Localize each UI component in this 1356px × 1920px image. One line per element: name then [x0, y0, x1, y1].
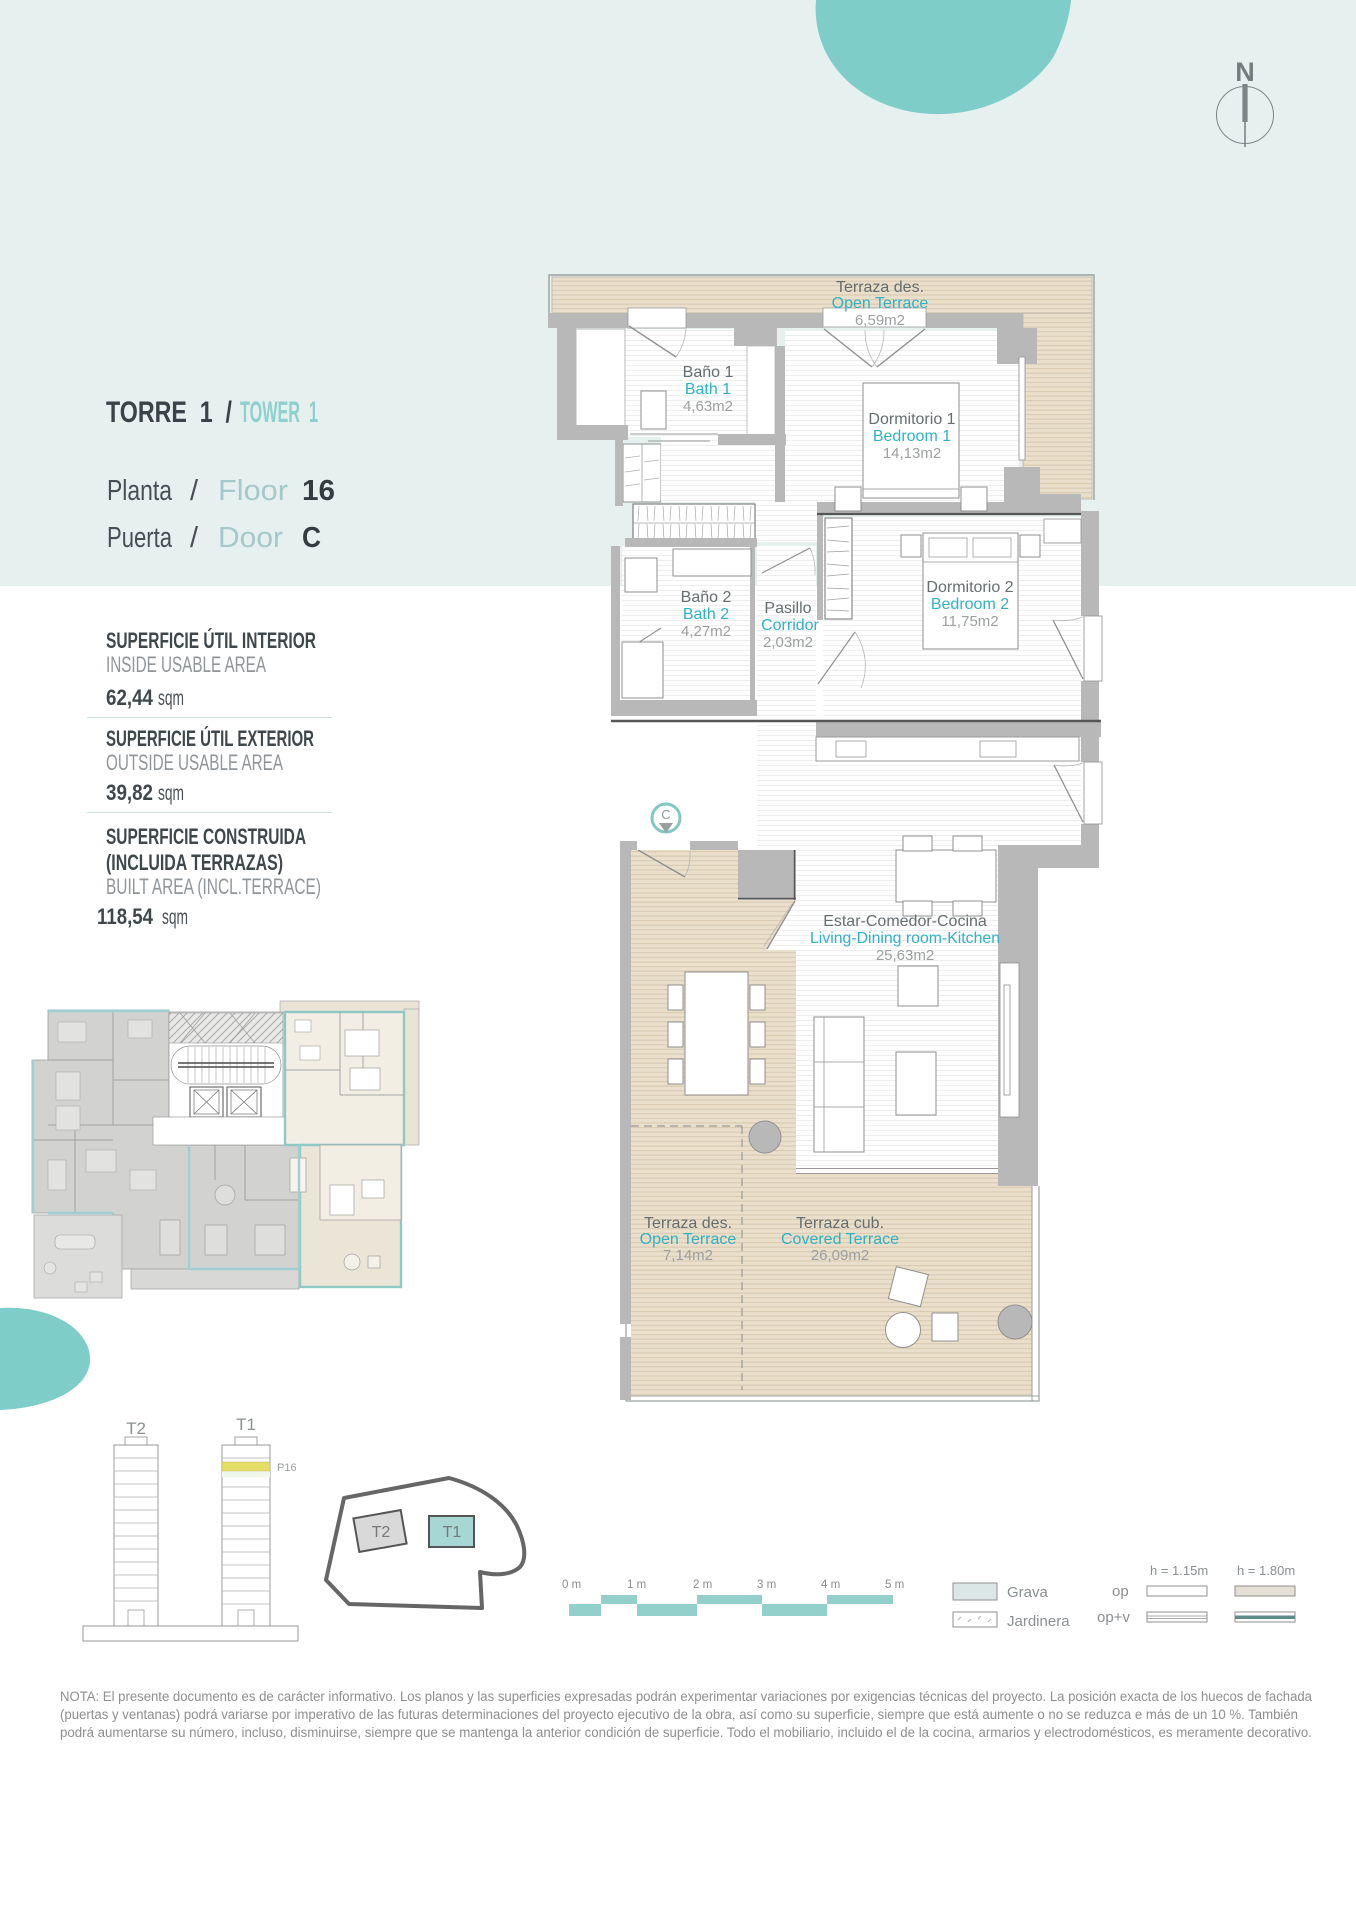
svg-text:P16: P16: [277, 1462, 297, 1474]
svg-text:C: C: [302, 522, 321, 554]
svg-text:4,63m2: 4,63m2: [683, 398, 733, 415]
svg-text:N: N: [1235, 57, 1255, 87]
svg-text:Grava: Grava: [1007, 1584, 1049, 1601]
svg-text:(puertas y ventanas) podrá var: (puertas y ventanas) podrá variarse por …: [60, 1707, 1298, 1722]
svg-text:TOWER 1: TOWER 1: [240, 396, 318, 429]
svg-text:OUTSIDE USABLE AREA: OUTSIDE USABLE AREA: [106, 750, 283, 775]
svg-text:INSIDE USABLE AREA: INSIDE USABLE AREA: [106, 652, 266, 677]
svg-text:Dormitorio 1: Dormitorio 1: [868, 411, 955, 428]
svg-text:T2: T2: [372, 1524, 391, 1541]
svg-text:C: C: [661, 807, 670, 822]
svg-text:25,63m2: 25,63m2: [876, 947, 934, 964]
svg-text:NOTA: El presente documento es: NOTA: El presente documento es de caráct…: [60, 1689, 1313, 1704]
svg-text:podrá aumentarse su número, in: podrá aumentarse su número, incluso, dis…: [60, 1725, 1312, 1740]
svg-text:11,75m2: 11,75m2: [941, 613, 998, 630]
svg-text:h = 1.80m: h = 1.80m: [1237, 1563, 1295, 1578]
svg-text:3 m: 3 m: [757, 1579, 776, 1591]
svg-text:Corridor: Corridor: [761, 617, 819, 634]
svg-text:16: 16: [302, 475, 335, 507]
svg-text:Planta: Planta: [107, 475, 173, 507]
svg-text:/: /: [190, 522, 199, 554]
svg-text:Dormitorio 2: Dormitorio 2: [926, 579, 1013, 596]
svg-text:SUPERFICIE CONSTRUIDA: SUPERFICIE CONSTRUIDA: [106, 824, 306, 849]
svg-text:Terraza cub.: Terraza cub.: [796, 1215, 884, 1232]
svg-text:SUPERFICIE ÚTIL INTERIOR: SUPERFICIE ÚTIL INTERIOR: [106, 628, 316, 653]
svg-text:/: /: [190, 475, 199, 507]
svg-text:Bedroom 2: Bedroom 2: [931, 596, 1009, 613]
svg-text:op+v: op+v: [1097, 1609, 1130, 1626]
svg-text:Terraza des.: Terraza des.: [644, 1215, 732, 1232]
svg-text:26,09m2: 26,09m2: [811, 1247, 869, 1264]
svg-text:7,14m2: 7,14m2: [663, 1247, 713, 1264]
svg-text:Pasillo: Pasillo: [764, 600, 811, 617]
svg-text:0 m: 0 m: [562, 1579, 581, 1591]
svg-text:Bath 1: Bath 1: [685, 381, 731, 398]
svg-text:118,54: 118,54: [97, 904, 154, 929]
svg-text:BUILT AREA (INCL.TERRACE): BUILT AREA (INCL.TERRACE): [106, 874, 321, 899]
svg-text:Terraza des.: Terraza des.: [836, 279, 924, 296]
svg-text:T1: T1: [443, 1524, 462, 1541]
svg-text:4,27m2: 4,27m2: [681, 623, 731, 640]
svg-text:Open Terrace: Open Terrace: [832, 295, 929, 312]
svg-text:14,13m2: 14,13m2: [883, 445, 941, 462]
svg-text:Jardinera: Jardinera: [1007, 1613, 1070, 1630]
svg-text:5 m: 5 m: [885, 1579, 904, 1591]
svg-text:Bath 2: Bath 2: [683, 606, 729, 623]
svg-text:Puerta: Puerta: [107, 522, 173, 554]
svg-text:62,44: 62,44: [106, 685, 154, 710]
svg-text:TORRE 1 /: TORRE 1 /: [106, 396, 233, 429]
svg-text:SUPERFICIE ÚTIL EXTERIOR: SUPERFICIE ÚTIL EXTERIOR: [106, 726, 314, 751]
svg-text:h = 1.15m: h = 1.15m: [1150, 1563, 1208, 1578]
svg-text:T1: T1: [236, 1415, 256, 1434]
svg-text:T2: T2: [126, 1419, 146, 1438]
svg-text:Baño 1: Baño 1: [683, 364, 734, 381]
svg-text:sqm: sqm: [158, 687, 184, 710]
svg-text:39,82: 39,82: [106, 780, 153, 805]
svg-text:6,59m2: 6,59m2: [855, 312, 905, 329]
svg-text:sqm: sqm: [158, 782, 184, 805]
svg-text:1 m: 1 m: [627, 1579, 646, 1591]
svg-text:op: op: [1112, 1583, 1129, 1600]
svg-text:sqm: sqm: [162, 906, 188, 929]
svg-text:Open Terrace: Open Terrace: [640, 1231, 737, 1248]
svg-text:Living-Dining room-Kitchen: Living-Dining room-Kitchen: [810, 930, 1000, 947]
svg-text:Covered Terrace: Covered Terrace: [781, 1231, 899, 1248]
svg-text:2,03m2: 2,03m2: [763, 634, 813, 651]
svg-text:Baño 2: Baño 2: [681, 589, 732, 606]
svg-text:Door: Door: [218, 522, 283, 554]
svg-text:Floor: Floor: [218, 475, 288, 507]
svg-text:4 m: 4 m: [821, 1579, 840, 1591]
svg-text:2 m: 2 m: [693, 1579, 712, 1591]
svg-text:Bedroom 1: Bedroom 1: [873, 428, 951, 445]
svg-text:Estar-Comedor-Cocina: Estar-Comedor-Cocina: [823, 913, 987, 930]
svg-text:(INCLUIDA TERRAZAS): (INCLUIDA TERRAZAS): [106, 850, 283, 875]
